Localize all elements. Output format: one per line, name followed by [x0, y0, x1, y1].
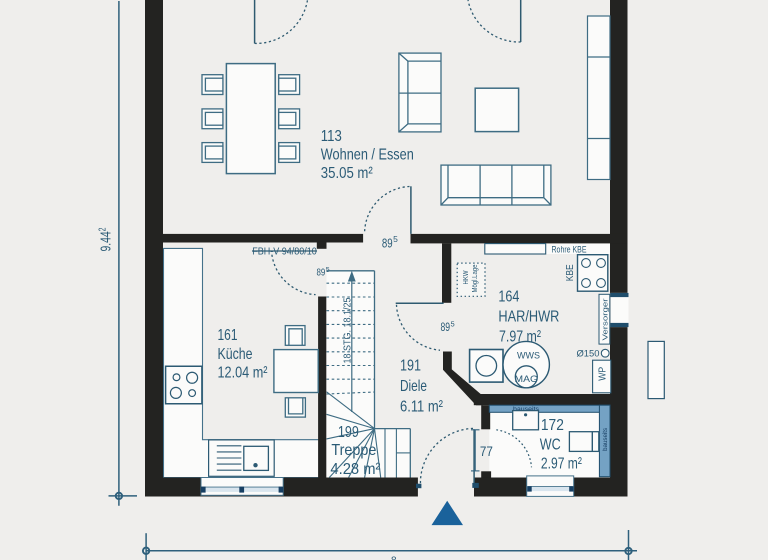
- svg-text:5: 5: [393, 234, 398, 244]
- svg-text:164: 164: [498, 289, 519, 306]
- svg-text:6.11 m²: 6.11 m²: [400, 399, 444, 416]
- svg-text:WC: WC: [540, 437, 561, 454]
- svg-text:35.05 m²: 35.05 m²: [321, 165, 374, 182]
- svg-text:89: 89: [317, 266, 326, 278]
- svg-text:HKW: HKW: [463, 270, 470, 284]
- svg-text:18 STG. 18.1/25: 18 STG. 18.1/25: [343, 297, 354, 363]
- svg-text:4.28 m²: 4.28 m²: [330, 461, 381, 478]
- svg-text:bauseits: bauseits: [602, 427, 609, 451]
- svg-text:89: 89: [441, 322, 451, 334]
- svg-text:12.04 m²: 12.04 m²: [218, 365, 269, 382]
- svg-text:113: 113: [321, 128, 342, 145]
- svg-text:WP: WP: [597, 367, 609, 381]
- svg-text:HAR/HWR: HAR/HWR: [498, 309, 559, 326]
- svg-text:Versorger: Versorger: [601, 298, 610, 341]
- svg-text:Treppe: Treppe: [331, 442, 376, 459]
- svg-text:Diele: Diele: [400, 378, 427, 395]
- svg-text:Küche: Küche: [218, 346, 253, 363]
- svg-text:Ø150: Ø150: [577, 348, 600, 358]
- svg-text:172: 172: [541, 417, 564, 434]
- svg-text:2.97 m²: 2.97 m²: [541, 456, 583, 473]
- svg-text:Mögl.Lage: Mögl.Lage: [472, 264, 479, 292]
- svg-text:Wohnen / Essen: Wohnen / Essen: [321, 147, 414, 164]
- svg-text:FBH-V 94/80/10: FBH-V 94/80/10: [252, 246, 317, 257]
- svg-text:8: 8: [391, 556, 397, 560]
- svg-text:89: 89: [382, 236, 393, 251]
- svg-text:WWS: WWS: [517, 351, 540, 361]
- svg-text:199: 199: [338, 424, 359, 441]
- svg-text:161: 161: [218, 327, 238, 344]
- svg-text:Rohre KBE: Rohre KBE: [552, 244, 587, 255]
- svg-text:191: 191: [400, 358, 421, 375]
- svg-text:77: 77: [480, 444, 493, 459]
- svg-text:KBE: KBE: [565, 264, 576, 281]
- svg-text:MAG: MAG: [515, 374, 539, 384]
- svg-text:5: 5: [451, 320, 455, 329]
